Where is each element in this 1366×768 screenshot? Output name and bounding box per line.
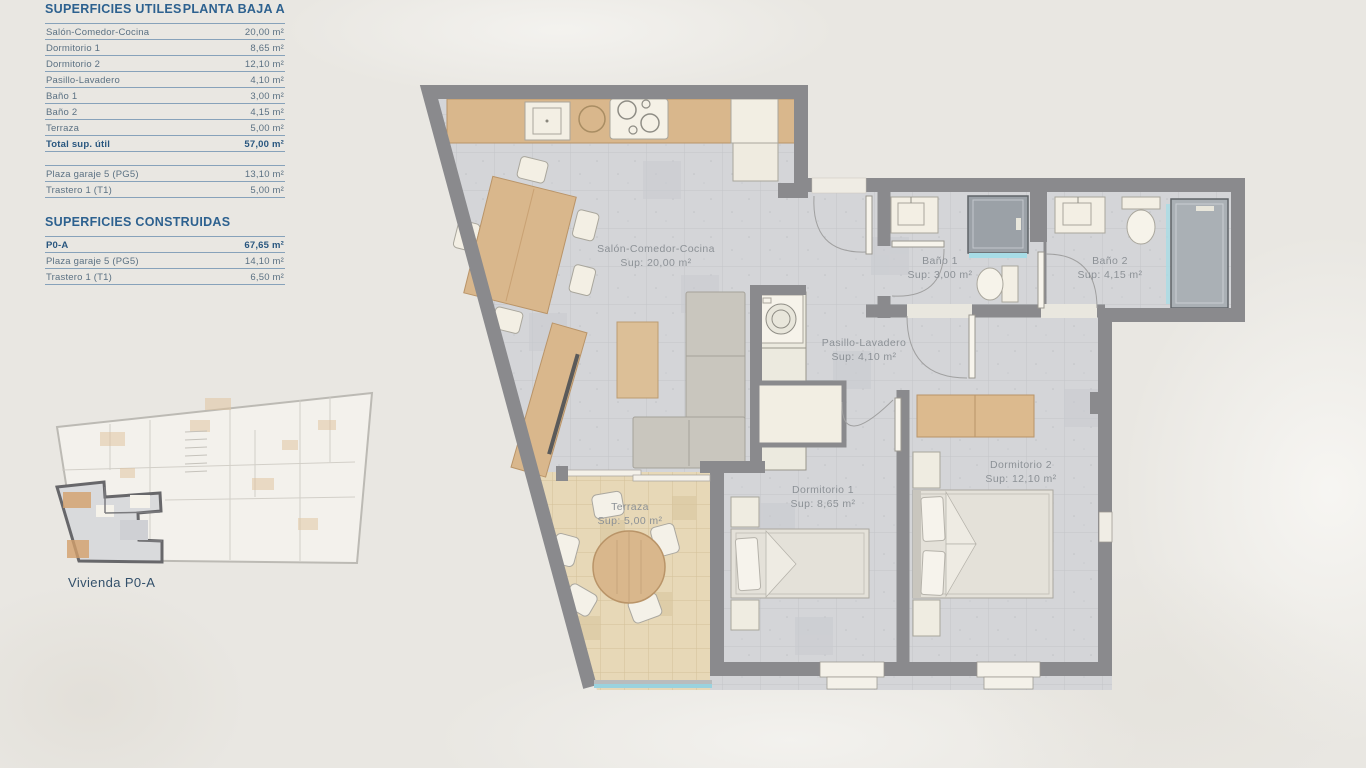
annex-table: Plaza garaje 5 (PG5)13,10 m² Trastero 1 … [45, 165, 285, 198]
window-sill [827, 677, 877, 689]
toilet [977, 268, 1003, 300]
table-row: Terraza5,00 m² [45, 120, 285, 136]
door-leaf [892, 241, 944, 247]
door-opening [1041, 304, 1097, 318]
surfaces-utiles-header: SUPERFICIES UTILES PLANTA BAJA A [45, 2, 285, 16]
nightstand [913, 600, 940, 636]
table-row: Baño 13,00 m² [45, 88, 285, 104]
surfaces-utiles-title: SUPERFICIES UTILES [45, 2, 182, 16]
glass-railing [594, 680, 712, 684]
room-label: Baño 1 [922, 255, 958, 267]
surfaces-utiles-table: Salón-Comedor-Cocina20,00 m² Dormitorio … [45, 23, 285, 152]
room-area: Sup: 3,00 m² [908, 269, 973, 281]
table-row: Plaza garaje 5 (PG5)13,10 m² [45, 166, 285, 182]
room-area: Sup: 4,15 m² [1078, 269, 1143, 281]
room-area: Sup: 20,00 m² [620, 257, 691, 269]
table-row: Pasillo-Lavadero4,10 m² [45, 72, 285, 88]
window [1099, 512, 1112, 542]
room-area: Sup: 12,10 m² [985, 473, 1056, 485]
headboard [913, 490, 921, 598]
table-row: Salón-Comedor-Cocina20,00 m² [45, 24, 285, 40]
door-leaf [895, 398, 901, 451]
door-leaf [866, 196, 872, 254]
table-row: Dormitorio 18,65 m² [45, 40, 285, 56]
terrace-slider [565, 470, 641, 476]
room-area: Sup: 5,00 m² [598, 515, 663, 527]
pillow [921, 496, 945, 541]
door-leaf [1038, 252, 1044, 308]
room-area: Sup: 8,65 m² [791, 498, 856, 510]
wall-pilaster [1090, 392, 1105, 414]
key-plan-caption: Vivienda P0-A [68, 575, 155, 590]
window [820, 662, 884, 677]
key-plan [30, 382, 380, 582]
nightstand [731, 497, 759, 527]
nightstand [913, 452, 940, 488]
surfaces-construidas-table: P0-A67,65 m² Plaza garaje 5 (PG5)14,10 m… [45, 236, 285, 285]
toilet-tank [1122, 197, 1160, 209]
shower [1171, 199, 1228, 308]
table-row: P0-A67,65 m² [45, 237, 285, 253]
surface-tables-panel: SUPERFICIES UTILES PLANTA BAJA A Salón-C… [45, 2, 285, 285]
window-sill [984, 677, 1033, 689]
table-row: Trastero 1 (T1)5,00 m² [45, 182, 285, 198]
door-leaf [969, 315, 975, 378]
window [977, 662, 1040, 677]
fridge [731, 99, 778, 143]
room-label: Dormitorio 2 [990, 459, 1052, 471]
room-label: Baño 2 [1092, 255, 1128, 267]
main-floor-plan: Salón-Comedor-Cocina Sup: 20,00 m² Baño … [415, 75, 1266, 700]
table-row: Trastero 1 (T1)6,50 m² [45, 269, 285, 285]
door-opening [907, 304, 972, 318]
glass-railing-water [594, 684, 712, 688]
table-total-row: Total sup. útil57,00 m² [45, 136, 285, 152]
floor-title: PLANTA BAJA A [183, 2, 285, 16]
room-label: Terraza [611, 501, 649, 513]
table-row: Dormitorio 212,10 m² [45, 56, 285, 72]
surfaces-construidas-title: SUPERFICIES CONSTRUIDAS [45, 215, 285, 229]
table-row: Plaza garaje 5 (PG5)14,10 m² [45, 253, 285, 269]
watercolor-blotch [0, 580, 250, 768]
entrance-opening [812, 178, 866, 193]
room-area: Sup: 4,10 m² [832, 351, 897, 363]
room-label: Dormitorio 1 [792, 484, 854, 496]
kitchen-cabinet [733, 143, 778, 181]
coffee-table [617, 322, 658, 398]
nightstand [731, 600, 759, 630]
room-label: Salón-Comedor-Cocina [597, 243, 715, 255]
wall-block [1030, 185, 1047, 242]
terrace-slider [633, 475, 710, 481]
floor-plan-sheet: SUPERFICIES UTILES PLANTA BAJA A Salón-C… [0, 0, 1366, 768]
toilet-tank [1002, 266, 1018, 302]
wall-block [778, 183, 808, 198]
room-label: Pasillo-Lavadero [822, 337, 907, 349]
closet-niche [757, 383, 844, 445]
pillow [921, 550, 945, 595]
toilet [1127, 210, 1155, 244]
table-row: Baño 24,15 m² [45, 104, 285, 120]
pillow [735, 537, 761, 590]
